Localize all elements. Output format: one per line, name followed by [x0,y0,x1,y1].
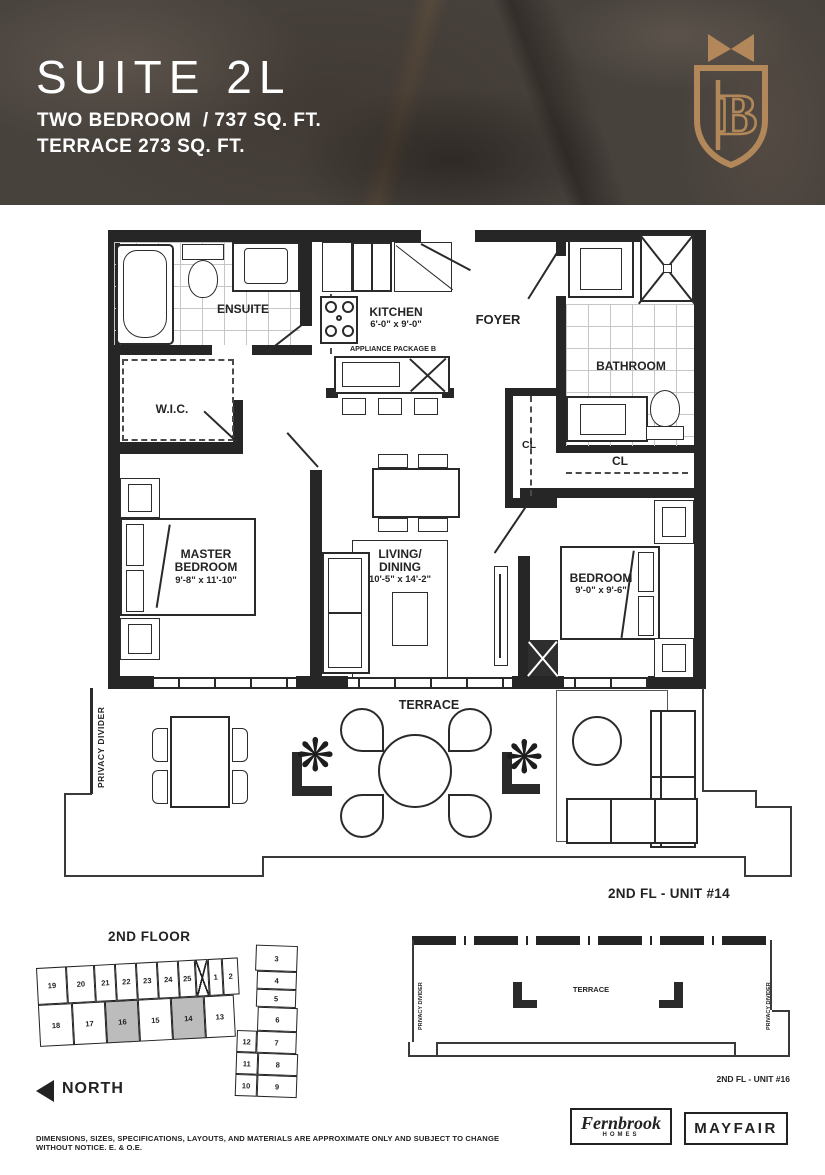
laundry-inner [580,248,622,290]
terrace-key-planter [659,1000,683,1008]
sofa-line [610,800,612,842]
burner [342,325,354,337]
keyplan-unit: 3 [255,945,298,972]
unit14-label: 2ND FL - UNIT #14 [608,886,730,901]
coffee-table [392,592,428,646]
plant-icon: ❋ [505,734,544,780]
keyplan-unit: 15 [138,998,173,1042]
bedroom-dims: 9'-0" x 9'-6" [558,586,644,596]
terrace-edge [262,856,746,858]
dining-chair [418,518,448,532]
island-sink [342,362,400,387]
terrace-key-privacy-left: PRIVACY DIVIDER [418,982,424,1030]
shower-drain [663,264,672,273]
fernbrook-logo-subtext: HOMES [602,1132,639,1138]
toilet-bowl [650,390,680,427]
mayfair-logo-text: MAYFAIR [694,1120,778,1137]
wall-segment [296,676,348,689]
terrace-key-label: TERRACE [556,986,626,994]
terrace-key-edge [408,1042,410,1056]
nightstand-inner [662,644,686,672]
wall-segment [108,230,421,242]
wall-segment [252,345,312,355]
keyplan-unit: 5 [256,989,297,1008]
side-table [572,716,622,766]
fernbrook-logo-text: Fernbrook [581,1115,661,1131]
sofa-line [654,800,656,842]
patio-chair [152,728,168,762]
terrace-key-edge [436,1042,734,1044]
tv-console [494,566,508,666]
pillow [638,596,654,636]
patio-chair [232,770,248,804]
terrace-key-edge [734,1042,736,1056]
pillow [126,570,144,612]
bistro-chair [340,794,384,838]
terrace-edge [702,688,704,790]
room-label-kitchen: KITCHEN [354,306,438,319]
burner [325,301,337,313]
keyplan-wing: 3 4 5 6 7 8 9 12 11 10 [233,944,302,1098]
terrace-key-privacy-right: PRIVACY DIVIDER [766,982,772,1030]
window-band [108,677,706,689]
room-label-master: MASTER BEDROOM [158,548,254,574]
wall-segment [520,488,694,498]
dining-chair [378,518,408,532]
patio-chair [152,770,168,804]
tv-line [499,574,501,658]
bar-stool [378,398,402,415]
keyplan-unit: 23 [136,962,159,1000]
bath-sink [580,404,626,435]
wall-segment [118,442,243,454]
patio-table [170,716,230,808]
unit16-label: 2ND FL - UNIT #16 [688,1074,790,1084]
bar-stool [342,398,366,415]
keyplan-unit: 18 [38,1003,74,1047]
terrace-key-edge [412,940,414,1042]
terrace-edge [64,875,264,877]
wall-segment [556,296,566,448]
dining-chair [418,454,448,468]
keyplan-bar: 19 20 21 22 23 24 25 1 2 18 17 16 15 14 … [36,957,242,1047]
keyplan-unit: 21 [94,964,117,1002]
room-label-bedroom: BEDROOM [558,572,644,585]
privacy-divider-line [90,688,93,794]
floorplan-sheet: SUITE 2L TWO BEDROOM / 737 SQ. FT. TERRA… [0,0,825,1175]
room-label-wic: W.I.C. [140,403,204,416]
keyplan-unit: 13 [204,995,236,1039]
bistro-chair [448,708,492,752]
mayfair-logo: MAYFAIR [684,1112,788,1145]
terrace-key-wall [412,936,772,945]
wic-closet-outline [122,359,234,441]
keyplan-unit-highlighted: 14 [171,996,206,1040]
toilet-bowl [188,260,218,298]
keyplan-unit: 6 [257,1007,298,1032]
toilet-tank [182,244,224,260]
disclaimer-text: DIMENSIONS, SIZES, SPECIFICATIONS, LAYOU… [36,1134,536,1152]
north-label: NORTH [62,1080,124,1098]
brand-shield-logo: B [688,32,774,172]
keyplan-unit: 22 [115,963,138,1001]
room-label-ensuite: ENSUITE [199,303,287,316]
closet-dashline [566,472,688,474]
planter [292,786,332,796]
bistro-chair [340,708,384,752]
burner [342,301,354,313]
terrace-edge [64,793,66,877]
north-arrow-icon [36,1080,54,1102]
terrace-edge [64,793,92,795]
closet1-label: CL [512,440,546,451]
suite-title: SUITE 2L [36,50,291,104]
nightstand-inner [662,507,686,537]
toilet-tank [646,426,684,440]
terrace-edge [702,790,757,792]
sink [244,248,288,284]
wall-segment [300,242,312,326]
kitchen-dims: 6'-0" x 9'-0" [354,320,438,330]
suite-type-line: TWO BEDROOM / 737 SQ. FT. [37,110,321,132]
terrace-edge [744,856,746,877]
master-dims: 9'-8" x 11'-10" [158,576,254,586]
keyplan-unit: 7 [256,1031,297,1054]
header-banner: SUITE 2L TWO BEDROOM / 737 SQ. FT. TERRA… [0,0,825,205]
keyplan-unit: 8 [257,1053,298,1076]
bistro-chair [448,794,492,838]
terrace-key-edge [408,1055,790,1057]
wall-segment [505,498,557,508]
keyplan-unit: 24 [157,961,180,999]
bistro-table [378,734,452,808]
keyplan-title: 2ND FLOOR [108,929,191,944]
keyplan-unit: 20 [66,965,96,1003]
wall-segment [310,470,322,688]
terrace-edge [744,875,792,877]
wall-segment [108,676,154,689]
terrace-edge [755,806,792,808]
keyplan-unit: 11 [235,1052,258,1075]
patio-chair [232,728,248,762]
keyplan-unit: 10 [235,1074,258,1097]
dining-table [372,468,460,518]
burner-knob [336,315,342,321]
terrace-key-edge [788,1010,790,1056]
keyplan-unit: 17 [72,1001,107,1045]
bathtub-inner [123,250,167,338]
terrace-edge [790,806,792,877]
planter [502,784,540,794]
burner [325,325,337,337]
bar-stool [414,398,438,415]
sofa-cushion-line [329,612,361,614]
wall-segment [556,445,694,453]
sectional-sofa-horizontal [566,798,698,844]
room-label-bathroom: BATHROOM [576,360,686,373]
dining-chair [378,454,408,468]
privacy-divider-label: PRIVACY DIVIDER [96,707,106,788]
keyplan-unit-highlighted: 16 [105,1000,140,1044]
terrace-key-planter [513,1000,537,1008]
nightstand-inner [128,484,152,512]
keyplan-unit: 12 [236,1030,257,1053]
terrace-edge [262,856,264,877]
terrace-size-line: TERRACE 273 SQ. FT. [37,136,245,158]
keyplan-unit: 25 [178,960,197,998]
terrace-key-edge [772,1010,790,1012]
keyplan-unit: 4 [256,971,297,990]
kitchen-counter [322,242,352,292]
keyplan-unit: 9 [257,1075,298,1098]
logo-letter: B [719,82,758,147]
sofa-line [652,776,694,778]
terrace-edge [755,790,757,808]
plant-icon: ❋ [296,732,335,778]
nightstand-inner [128,624,152,654]
fridge-divider [371,244,373,290]
room-label-foyer: FOYER [462,313,534,327]
keyplan-unit: 19 [36,966,68,1005]
fernbrook-logo: Fernbrook HOMES [570,1108,672,1145]
pillow [126,524,144,566]
closet2-label: CL [600,455,640,468]
appliance-note: APPLIANCE PACKAGE B [334,345,452,353]
wall-segment [108,345,212,355]
wall-segment [694,242,706,688]
terrace-key-edge [436,1042,438,1056]
